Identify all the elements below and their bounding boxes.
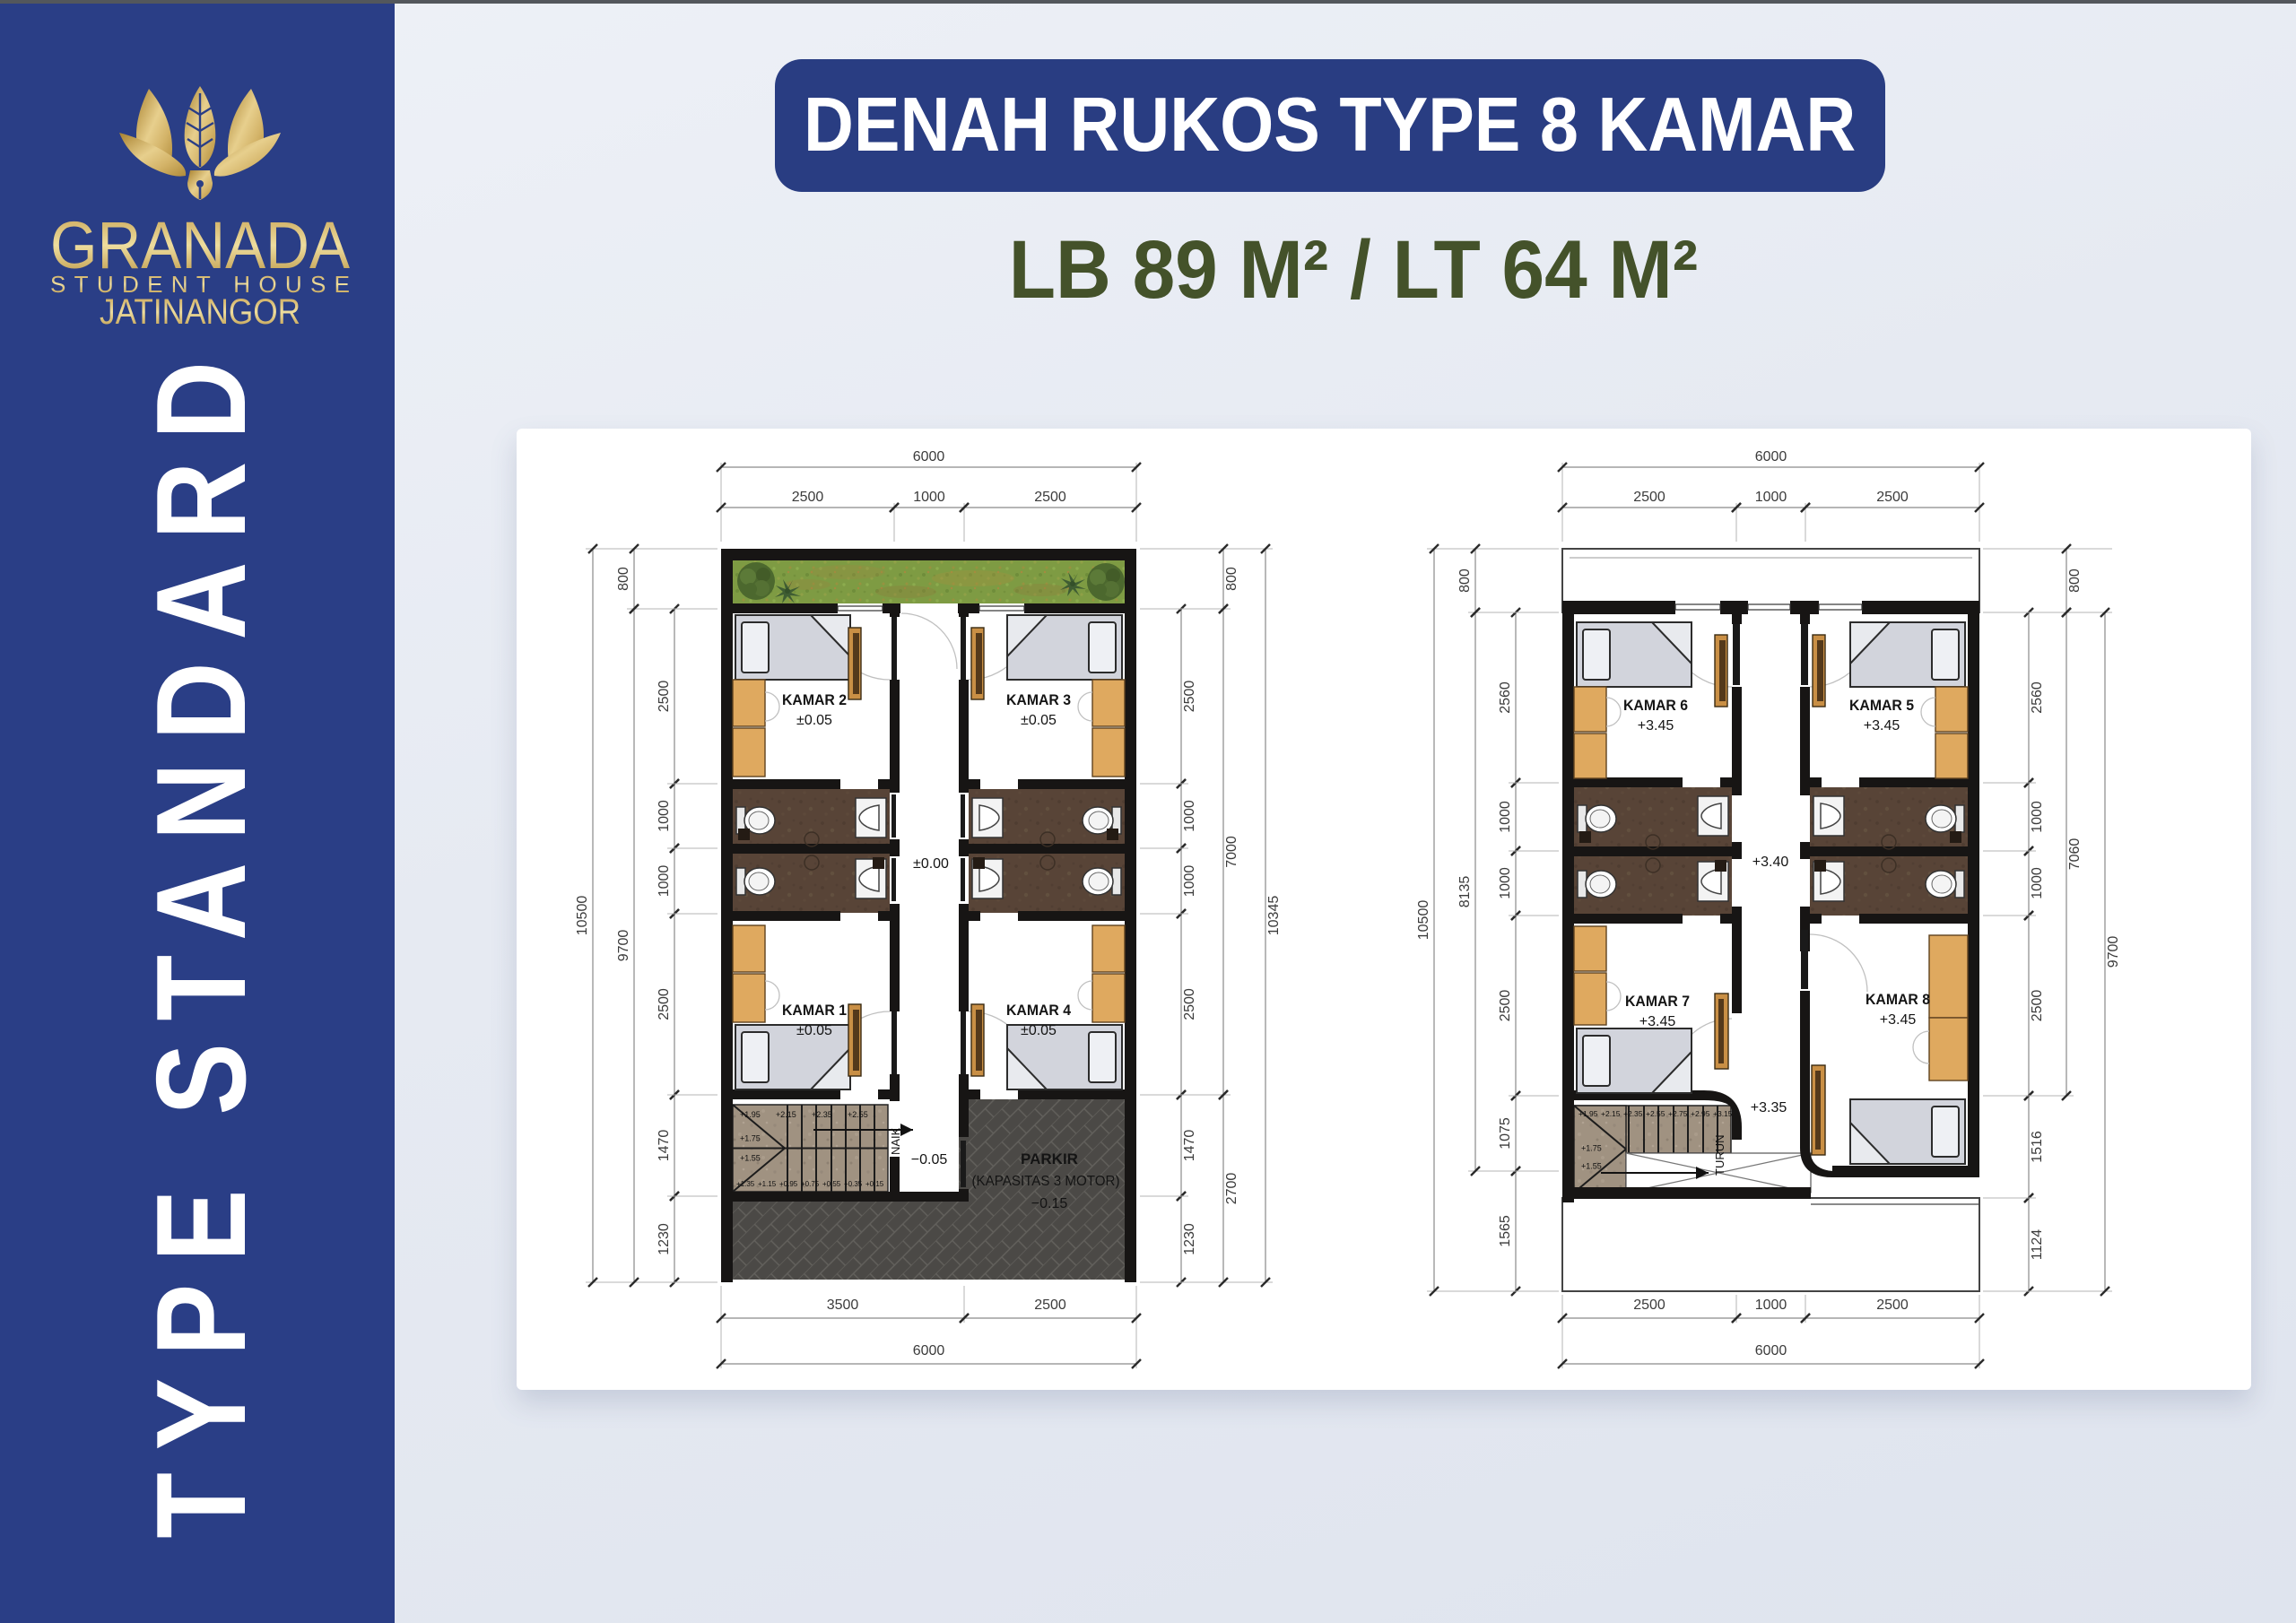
- svg-text:1000: 1000: [1755, 1298, 1787, 1313]
- svg-text:+1.95: +1.95: [1578, 1109, 1598, 1118]
- svg-text:+0.75: +0.75: [801, 1180, 820, 1188]
- svg-text:9700: 9700: [616, 930, 631, 962]
- svg-text:+1.35: +1.35: [736, 1180, 755, 1188]
- svg-text:1470: 1470: [1182, 1130, 1197, 1162]
- svg-text:1000: 1000: [1498, 801, 1513, 833]
- svg-text:+3.40: +3.40: [1752, 855, 1789, 870]
- svg-text:1565: 1565: [1498, 1215, 1513, 1247]
- svg-text:2500: 2500: [1876, 490, 1909, 505]
- svg-text:+2.75: +2.75: [1668, 1109, 1688, 1118]
- svg-text:6000: 6000: [913, 1343, 945, 1358]
- svg-text:+2.95: +2.95: [1691, 1109, 1710, 1118]
- svg-text:2500: 2500: [1876, 1298, 1909, 1313]
- svg-text:800: 800: [1457, 568, 1473, 593]
- svg-text:±0.05: ±0.05: [1021, 713, 1057, 728]
- svg-text:±0.05: ±0.05: [1021, 1023, 1057, 1038]
- svg-text:±0.05: ±0.05: [796, 713, 832, 728]
- svg-text:2560: 2560: [2030, 681, 2045, 714]
- svg-text:800: 800: [1224, 567, 1239, 591]
- svg-text:1516: 1516: [2030, 1131, 2045, 1163]
- svg-text:9700: 9700: [2106, 936, 2121, 968]
- svg-text:1470: 1470: [657, 1130, 672, 1162]
- svg-text:7000: 7000: [1224, 836, 1239, 868]
- svg-text:8135: 8135: [1457, 876, 1473, 908]
- svg-text:NAIK: NAIK: [889, 1127, 902, 1155]
- svg-text:KAMAR 6: KAMAR 6: [1623, 697, 1688, 714]
- svg-text:PARKIR: PARKIR: [1021, 1150, 1078, 1167]
- svg-text:JATINANGOR: JATINANGOR: [100, 292, 300, 332]
- svg-text:+1.75: +1.75: [1581, 1144, 1602, 1153]
- svg-text:2500: 2500: [2030, 990, 2045, 1022]
- svg-text:2500: 2500: [1498, 990, 1513, 1022]
- svg-text:+0.35: +0.35: [844, 1180, 863, 1188]
- svg-text:+2.55: +2.55: [848, 1110, 868, 1119]
- svg-text:+2.15: +2.15: [1601, 1109, 1621, 1118]
- svg-text:+2.55: +2.55: [1646, 1109, 1665, 1118]
- svg-text:KAMAR 3: KAMAR 3: [1006, 691, 1071, 708]
- svg-text:2700: 2700: [1224, 1173, 1239, 1205]
- svg-text:1000: 1000: [1182, 865, 1197, 898]
- svg-text:2500: 2500: [1182, 681, 1197, 713]
- svg-text:+1.95: +1.95: [740, 1110, 761, 1119]
- svg-text:6000: 6000: [1755, 1343, 1787, 1358]
- svg-text:800: 800: [2067, 568, 2083, 593]
- svg-text:2500: 2500: [1034, 1298, 1066, 1313]
- svg-text:7060: 7060: [2067, 838, 2083, 871]
- svg-text:800: 800: [616, 567, 631, 591]
- svg-text:KAMAR 1: KAMAR 1: [782, 1002, 847, 1019]
- svg-text:+1.15: +1.15: [758, 1180, 777, 1188]
- svg-text:1230: 1230: [1182, 1223, 1197, 1255]
- svg-text:(KAPASITAS 3 MOTOR): (KAPASITAS 3 MOTOR): [972, 1174, 1120, 1189]
- svg-text:±0.00: ±0.00: [913, 856, 949, 872]
- svg-text:2500: 2500: [1182, 988, 1197, 1020]
- svg-text:+3.45: +3.45: [1639, 1014, 1676, 1029]
- svg-text:2500: 2500: [1633, 1298, 1665, 1313]
- svg-text:2560: 2560: [1498, 681, 1513, 714]
- svg-text:+2.35: +2.35: [1623, 1109, 1643, 1118]
- svg-text:2500: 2500: [657, 988, 672, 1020]
- svg-text:+3.45: +3.45: [1880, 1012, 1917, 1028]
- svg-text:+3.35: +3.35: [1751, 1100, 1787, 1115]
- svg-text:+1.55: +1.55: [740, 1154, 761, 1163]
- svg-text:±0.05: ±0.05: [796, 1023, 832, 1038]
- svg-text:1000: 1000: [1498, 867, 1513, 899]
- svg-text:1124: 1124: [2030, 1229, 2045, 1261]
- svg-text:1000: 1000: [657, 865, 672, 898]
- svg-text:10500: 10500: [1416, 900, 1431, 941]
- svg-text:1000: 1000: [913, 490, 945, 505]
- svg-text:2500: 2500: [1633, 490, 1665, 505]
- svg-text:−0.05: −0.05: [911, 1152, 948, 1167]
- svg-text:1000: 1000: [657, 800, 672, 832]
- svg-text:KAMAR 8: KAMAR 8: [1865, 991, 1930, 1008]
- svg-text:KAMAR 5: KAMAR 5: [1849, 697, 1914, 714]
- svg-text:6000: 6000: [1755, 449, 1787, 464]
- svg-text:1000: 1000: [2030, 867, 2045, 899]
- svg-text:3500: 3500: [827, 1298, 859, 1313]
- svg-text:2500: 2500: [657, 681, 672, 713]
- svg-text:+3.45: +3.45: [1638, 718, 1674, 733]
- svg-text:KAMAR 4: KAMAR 4: [1006, 1002, 1072, 1019]
- svg-text:1230: 1230: [657, 1223, 672, 1255]
- svg-text:10500: 10500: [575, 896, 590, 936]
- svg-text:1000: 1000: [1182, 800, 1197, 832]
- svg-text:10345: 10345: [1266, 896, 1282, 936]
- svg-text:TURUN: TURUN: [1713, 1135, 1726, 1176]
- svg-text:+2.15: +2.15: [776, 1110, 796, 1119]
- svg-text:+0.95: +0.95: [779, 1180, 798, 1188]
- svg-text:1000: 1000: [2030, 801, 2045, 833]
- svg-text:+3.15: +3.15: [1713, 1109, 1733, 1118]
- svg-text:6000: 6000: [913, 449, 945, 464]
- svg-text:1000: 1000: [1755, 490, 1787, 505]
- svg-text:2500: 2500: [792, 490, 824, 505]
- svg-text:+3.45: +3.45: [1864, 718, 1900, 733]
- svg-text:+1.55: +1.55: [1581, 1162, 1602, 1171]
- svg-text:2500: 2500: [1034, 490, 1066, 505]
- svg-text:−0.15: −0.15: [1031, 1196, 1068, 1211]
- svg-text:KAMAR 7: KAMAR 7: [1625, 993, 1690, 1010]
- svg-text:+1.75: +1.75: [740, 1134, 761, 1143]
- svg-text:+2.35: +2.35: [812, 1110, 832, 1119]
- svg-text:+0.15: +0.15: [865, 1180, 884, 1188]
- svg-text:1075: 1075: [1498, 1117, 1513, 1150]
- svg-text:KAMAR 2: KAMAR 2: [782, 691, 847, 708]
- svg-text:+0.55: +0.55: [822, 1180, 841, 1188]
